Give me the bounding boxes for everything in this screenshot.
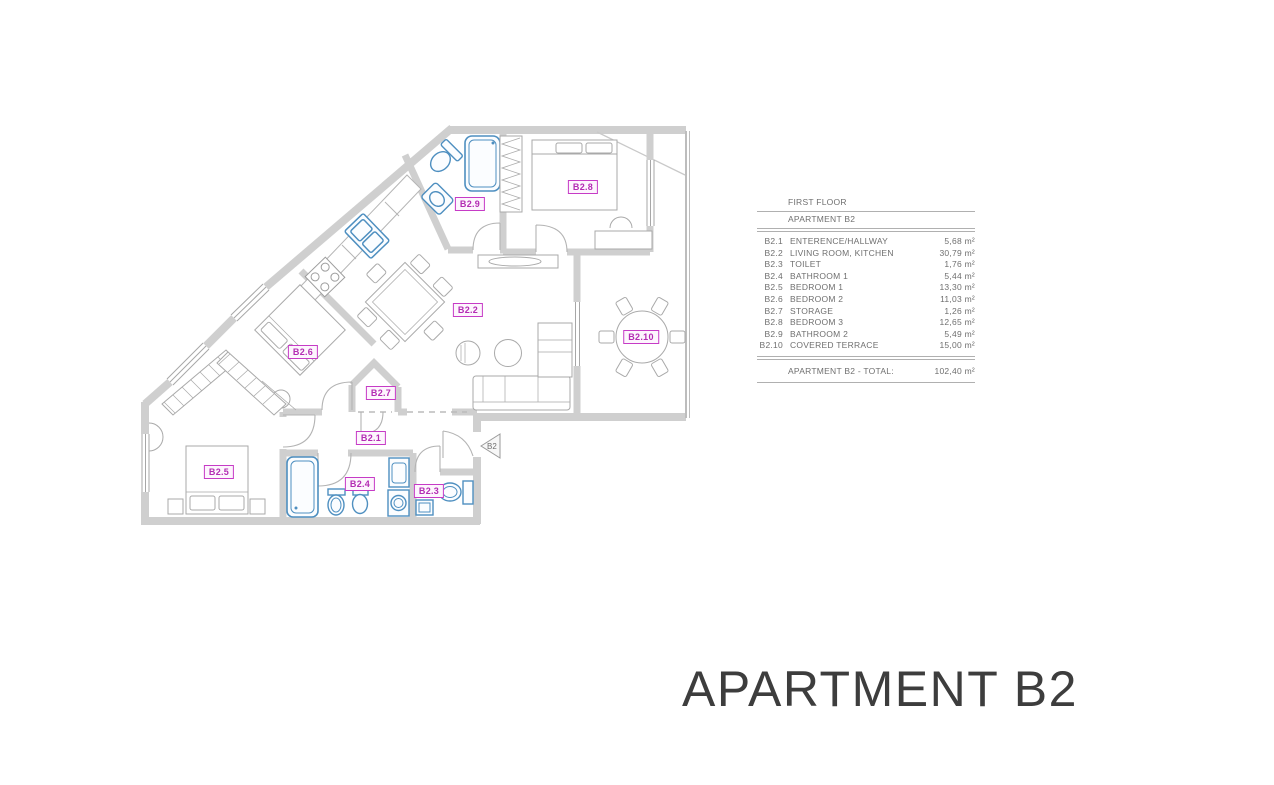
legend-room-code: B2.10 [757,340,783,352]
room-label-B2.5: B2.5 [204,465,234,479]
room-label-B2.7: B2.7 [366,386,396,400]
legend-room-name: LIVING ROOM, KITCHEN [783,248,939,260]
legend-row-B2.4: B2.4BATHROOM 15,44 m² [757,271,975,283]
legend-room-name: ENTERENCE/HALLWAY [783,236,944,248]
room-label-B2.6: B2.6 [288,345,318,359]
legend-room-code: B2.1 [757,236,783,248]
sink-icon-b24 [389,458,409,487]
legend-room-area: 1,26 m² [944,306,975,318]
legend-row-B2.1: B2.1ENTERENCE/HALLWAY5,68 m² [757,236,975,248]
legend-room-area: 5,44 m² [944,271,975,283]
legend-rows: B2.1ENTERENCE/HALLWAY5,68 m²B2.2LIVING R… [757,232,975,356]
legend-room-name: TOILET [783,259,944,271]
legend-room-area: 1,76 m² [944,259,975,271]
entrance-marker: B2 [481,434,500,458]
entrance-label: B2 [487,442,497,451]
bathtub-icon-b24 [287,457,318,517]
legend-room-area: 12,65 m² [939,317,975,329]
legend-room-area: 15,00 m² [939,340,975,352]
room-label-B2.10: B2.10 [623,330,659,344]
closet-band-right [217,352,286,415]
legend-room-code: B2.9 [757,329,783,341]
legend-room-name: STORAGE [783,306,944,318]
legend-room-area: 30,79 m² [939,248,975,260]
sink-icon-b23 [416,500,433,515]
bidet-icon-b24 [353,489,369,514]
legend-room-area: 13,30 m² [939,282,975,294]
legend-row-B2.6: B2.6BEDROOM 211,03 m² [757,294,975,306]
legend-room-name: BATHROOM 2 [783,329,944,341]
legend-row-B2.10: B2.10COVERED TERRACE15,00 m² [757,340,975,352]
legend-row-B2.3: B2.3TOILET1,76 m² [757,259,975,271]
sink-icon-b29 [421,182,454,215]
room-label-B2.1: B2.1 [356,431,386,445]
legend-row-B2.2: B2.2LIVING ROOM, KITCHEN30,79 m² [757,248,975,260]
legend-room-area: 5,49 m² [944,329,975,341]
desk-b28 [595,231,652,249]
apartment-title: APARTMENT B2 [757,212,975,228]
room-label-B2.2: B2.2 [453,303,483,317]
legend-room-code: B2.2 [757,248,783,260]
legend-room-name: BEDROOM 1 [783,282,939,294]
legend-table: FIRST FLOOR APARTMENT B2 B2.1ENTERENCE/H… [757,195,975,383]
room-label-B2.9: B2.9 [455,197,485,211]
legend-room-code: B2.4 [757,271,783,283]
armchair-2 [495,340,522,367]
legend-room-code: B2.3 [757,259,783,271]
legend-row-B2.7: B2.7STORAGE1,26 m² [757,306,975,318]
total-row: APARTMENT B2 - TOTAL: 102,40 m² [757,360,975,382]
legend-room-area: 11,03 m² [940,294,975,306]
legend-room-code: B2.7 [757,306,783,318]
legend-row-B2.9: B2.9BATHROOM 25,49 m² [757,329,975,341]
toilet-icon-b24 [328,489,345,515]
legend-room-name: BEDROOM 2 [783,294,940,306]
legend-room-name: BATHROOM 1 [783,271,944,283]
total-label: APARTMENT B2 - TOTAL: [757,366,934,377]
room-label-B2.3: B2.3 [414,484,444,498]
floor-title: FIRST FLOOR [757,195,975,211]
legend-row-B2.5: B2.5BEDROOM 113,30 m² [757,282,975,294]
sofa [473,376,570,410]
dining-table [341,238,470,367]
tv-cabinet [538,323,572,377]
legend-room-name: BEDROOM 3 [783,317,939,329]
legend-row-B2.8: B2.8BEDROOM 312,65 m² [757,317,975,329]
legend-room-area: 5,68 m² [944,236,975,248]
legend-room-code: B2.8 [757,317,783,329]
total-area: 102,40 m² [934,366,975,377]
washing-machine-icon [388,490,409,516]
floor-plan-page: B2 B2.1B2.2B2.3B2.4B2.5B2.6B2.7B2.8B2.9B… [0,0,1274,785]
bathtub-icon-b29 [465,136,500,191]
legend-room-name: COVERED TERRACE [783,340,939,352]
divider [757,382,975,383]
page-title: APARTMENT B2 [682,660,1078,718]
legend-room-code: B2.6 [757,294,783,306]
room-label-B2.8: B2.8 [568,180,598,194]
floor-plan-drawing: B2 [0,0,1274,785]
legend-room-code: B2.5 [757,282,783,294]
armchair-1 [456,341,480,365]
room-label-B2.4: B2.4 [345,477,375,491]
